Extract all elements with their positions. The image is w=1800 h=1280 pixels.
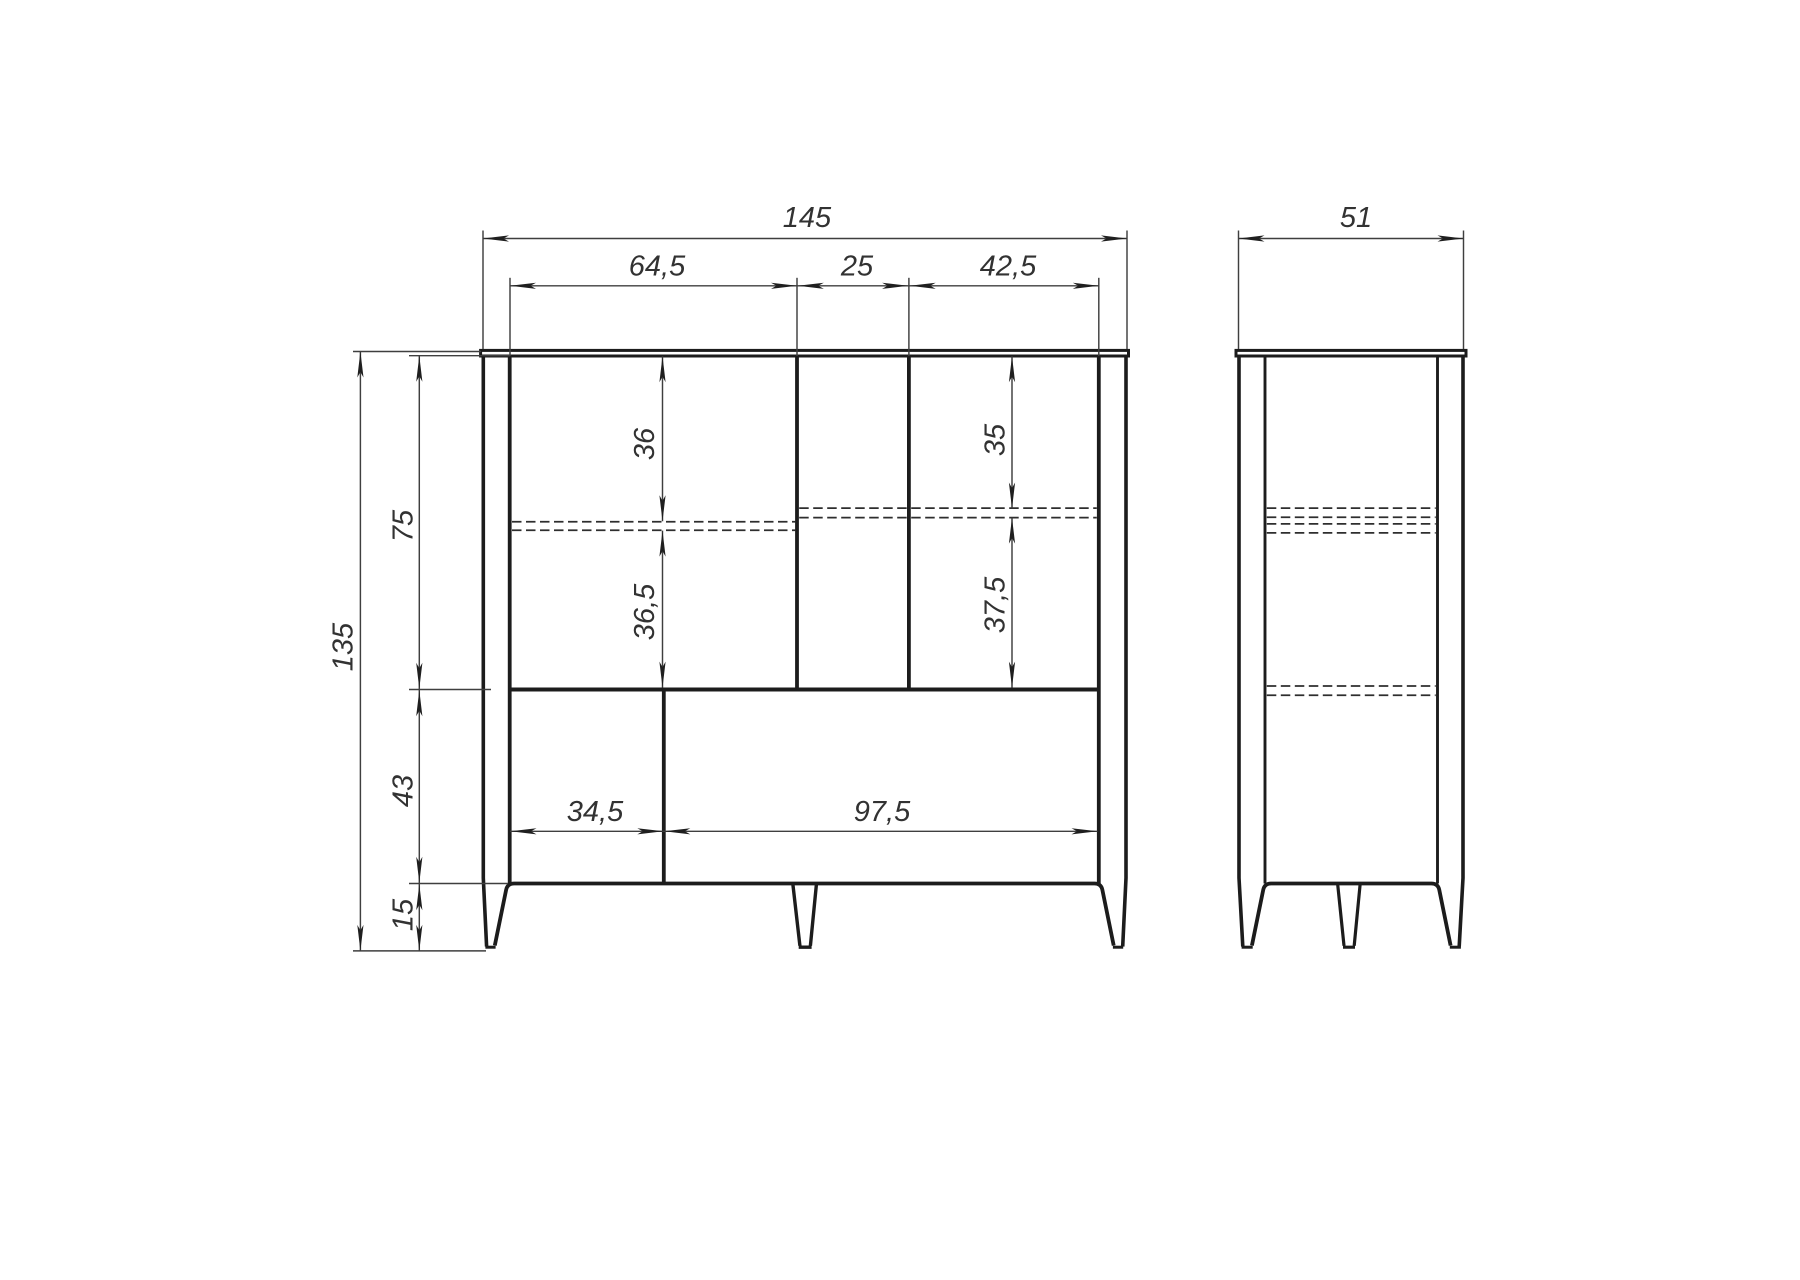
svg-text:135: 135 bbox=[328, 622, 360, 671]
svg-text:75: 75 bbox=[387, 509, 419, 542]
svg-text:97,5: 97,5 bbox=[854, 796, 911, 828]
svg-text:64,5: 64,5 bbox=[629, 251, 686, 283]
svg-text:51: 51 bbox=[1340, 202, 1372, 234]
svg-text:25: 25 bbox=[840, 251, 874, 283]
svg-text:37,5: 37,5 bbox=[980, 576, 1012, 633]
svg-text:36,5: 36,5 bbox=[629, 583, 661, 640]
svg-text:145: 145 bbox=[783, 202, 832, 234]
svg-text:42,5: 42,5 bbox=[980, 251, 1037, 283]
svg-text:34,5: 34,5 bbox=[567, 796, 624, 828]
svg-text:43: 43 bbox=[387, 775, 419, 807]
svg-text:15: 15 bbox=[387, 898, 419, 931]
svg-text:36: 36 bbox=[629, 427, 661, 460]
svg-text:35: 35 bbox=[980, 423, 1012, 456]
